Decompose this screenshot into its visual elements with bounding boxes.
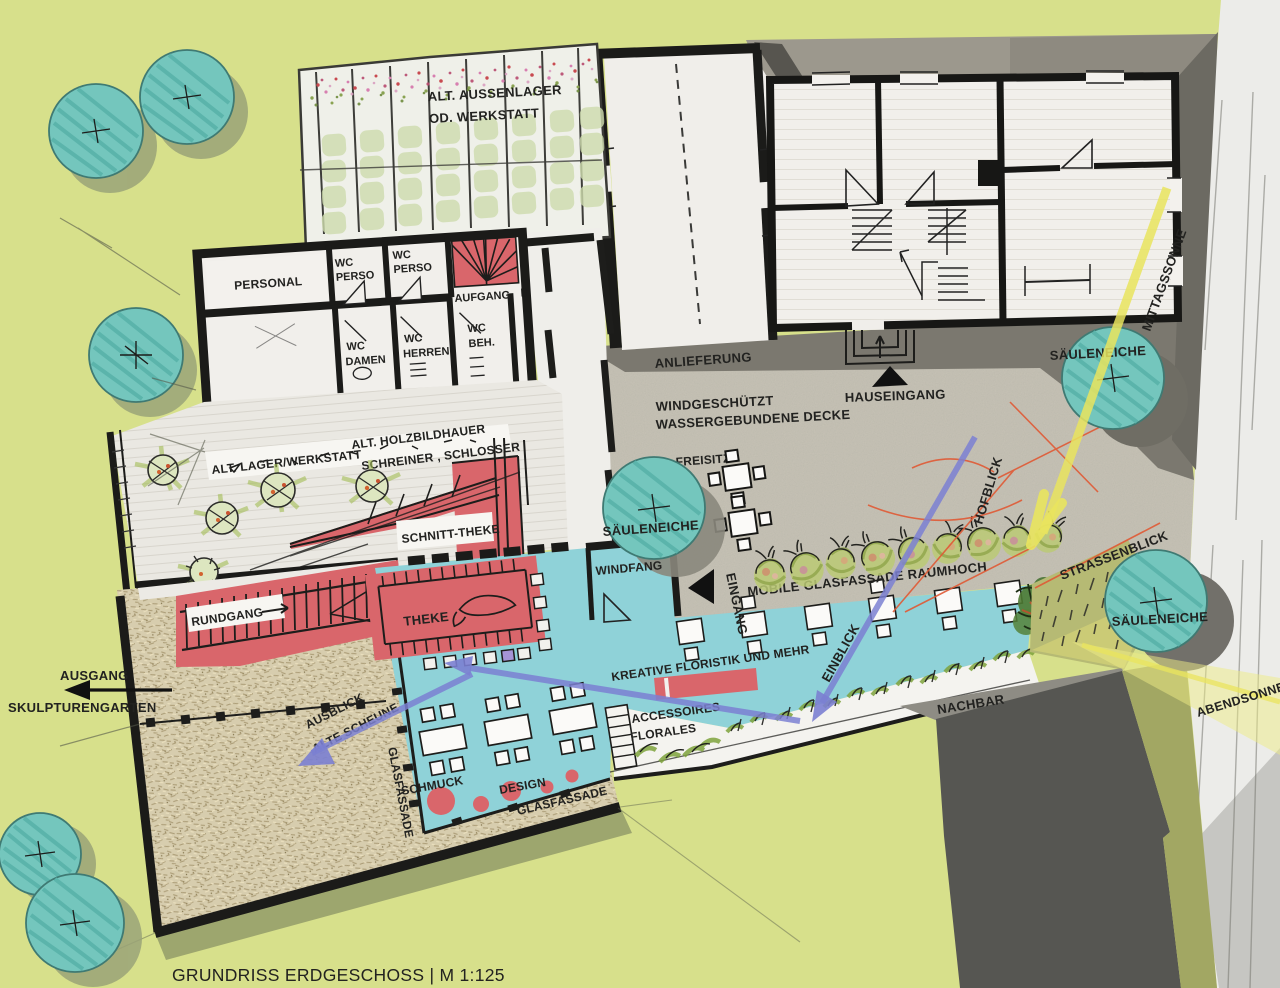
svg-text:WC: WC: [392, 249, 411, 262]
svg-text:WC: WC: [404, 332, 423, 345]
svg-text:GRUNDRISS ERDGESCHOSS | M 1:12: GRUNDRISS ERDGESCHOSS | M 1:125: [172, 965, 505, 985]
svg-text:WC: WC: [346, 340, 365, 353]
svg-text:WC: WC: [467, 322, 486, 335]
svg-text:SKULPTURENGARTEN: SKULPTURENGARTEN: [8, 700, 157, 715]
svg-text:BEH.: BEH.: [468, 336, 495, 350]
svg-text:WC: WC: [335, 257, 354, 270]
svg-text:AUSGANG: AUSGANG: [60, 668, 129, 683]
